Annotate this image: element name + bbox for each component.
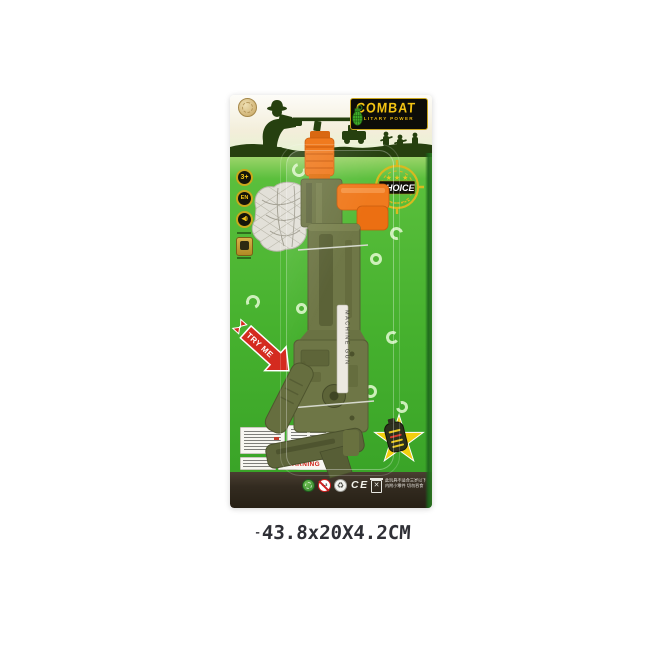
promo-star-badge: [372, 413, 426, 467]
orange-muzzle: [305, 138, 334, 176]
dimension-caption: -43.8x20X4.2CM: [224, 522, 440, 544]
dimension-text: 43.8x20X4.2CM: [261, 522, 411, 544]
product-photo: COMBAT MILITARY POWER 3+ EN: [0, 0, 650, 650]
grenade-emblem: [383, 420, 410, 454]
upper-receiver: [308, 224, 360, 336]
packaging-card: COMBAT MILITARY POWER 3+ EN: [230, 95, 432, 508]
dimension-dash: -: [254, 526, 261, 539]
gun-side-text: MACHINE GUN: [344, 310, 350, 366]
